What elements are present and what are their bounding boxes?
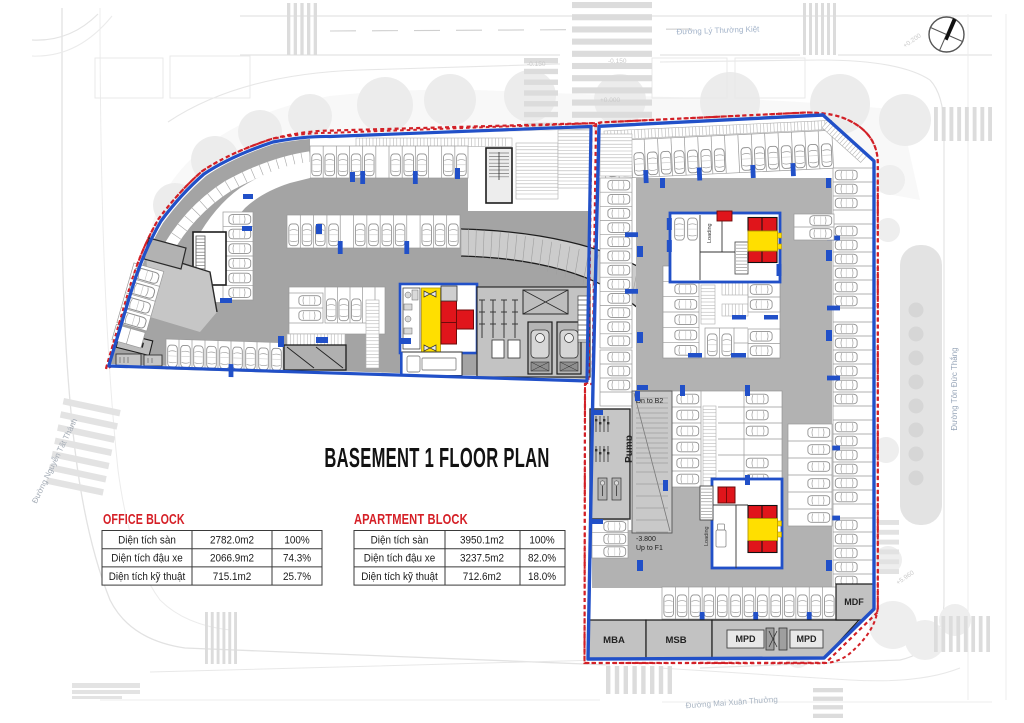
svg-text:-0.150: -0.150 xyxy=(608,58,627,65)
svg-text:712.6m2: 712.6m2 xyxy=(463,571,502,583)
svg-text:25.7%: 25.7% xyxy=(283,571,311,583)
svg-text:-3.800: -3.800 xyxy=(636,536,656,543)
svg-text:Diện tích sàn: Diện tích sàn xyxy=(371,535,429,547)
svg-text:Loading: Loading xyxy=(704,526,710,546)
svg-text:3237.5m2: 3237.5m2 xyxy=(460,553,504,565)
svg-text:Diện tích kỹ thuật: Diện tích kỹ thuật xyxy=(361,571,437,583)
svg-text:3950.1m2: 3950.1m2 xyxy=(460,535,504,547)
svg-text:18.0%: 18.0% xyxy=(528,571,556,583)
svg-text:715.1m2: 715.1m2 xyxy=(213,571,252,583)
svg-text:2066.9m2: 2066.9m2 xyxy=(210,553,254,565)
svg-text:Loading: Loading xyxy=(707,223,713,243)
svg-text:74.3%: 74.3% xyxy=(283,553,311,565)
svg-text:100%: 100% xyxy=(284,535,309,547)
svg-text:MDF: MDF xyxy=(844,597,864,607)
svg-text:Dn to B2: Dn to B2 xyxy=(636,398,663,405)
svg-text:82.0%: 82.0% xyxy=(528,553,556,565)
svg-text:MPD: MPD xyxy=(736,634,757,644)
svg-text:Up to F1: Up to F1 xyxy=(636,545,663,552)
svg-text:Đường Tôn Đức Thắng: Đường Tôn Đức Thắng xyxy=(950,347,959,430)
svg-text:-0.150: -0.150 xyxy=(527,61,546,68)
svg-text:OFFICE BLOCK: OFFICE BLOCK xyxy=(103,510,185,527)
svg-text:Diện tích đậu xe: Diện tích đậu xe xyxy=(111,553,183,565)
svg-text:BASEMENT 1 FLOOR PLAN: BASEMENT 1 FLOOR PLAN xyxy=(324,441,549,473)
svg-text:2782.0m2: 2782.0m2 xyxy=(210,535,254,547)
svg-text:100%: 100% xyxy=(529,535,554,547)
svg-text:MBA: MBA xyxy=(603,635,625,646)
svg-text:Diện tích kỹ thuật: Diện tích kỹ thuật xyxy=(109,571,185,583)
svg-text:Diện tích sàn: Diện tích sàn xyxy=(118,535,176,547)
svg-text:MPD: MPD xyxy=(797,634,818,644)
svg-text:Diện tích đậu xe: Diện tích đậu xe xyxy=(364,553,436,565)
svg-text:APARTMENT BLOCK: APARTMENT BLOCK xyxy=(354,511,468,528)
svg-text:MSB: MSB xyxy=(665,635,686,646)
svg-text:+0.000: +0.000 xyxy=(600,97,620,104)
